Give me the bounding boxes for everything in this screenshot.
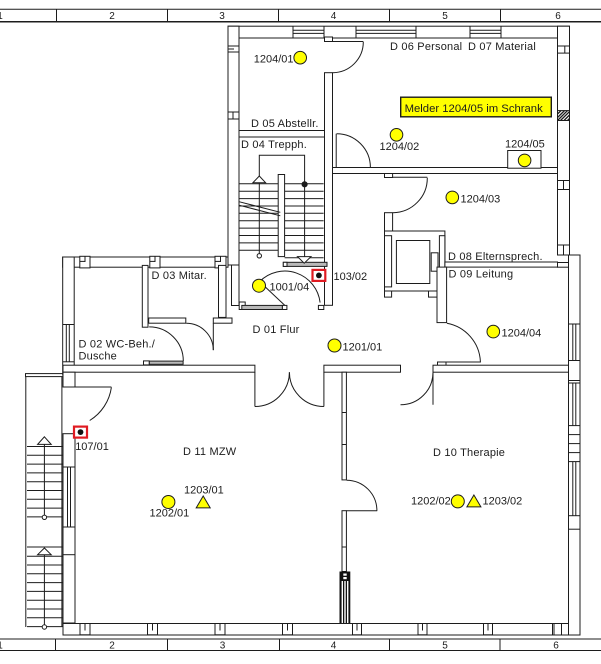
svg-text:3: 3 bbox=[219, 11, 225, 22]
svg-text:1204/03: 1204/03 bbox=[461, 193, 501, 205]
svg-text:Melder 1204/05 im Schrank: Melder 1204/05 im Schrank bbox=[405, 103, 543, 115]
svg-text:6: 6 bbox=[553, 641, 559, 652]
svg-text:D 02 WC-Beh./: D 02 WC-Beh./ bbox=[79, 339, 156, 351]
svg-text:D 05 Abstellr.: D 05 Abstellr. bbox=[251, 118, 319, 130]
svg-text:5: 5 bbox=[442, 11, 448, 22]
svg-text:D 03 Mitar.: D 03 Mitar. bbox=[152, 270, 207, 282]
svg-text:4: 4 bbox=[331, 641, 337, 652]
svg-text:1204/02: 1204/02 bbox=[380, 141, 420, 153]
svg-text:D 10 Therapie: D 10 Therapie bbox=[433, 447, 505, 459]
svg-text:1203/01: 1203/01 bbox=[184, 485, 224, 497]
svg-text:107/01: 107/01 bbox=[75, 441, 109, 453]
svg-text:D 09 Leitung: D 09 Leitung bbox=[449, 269, 514, 281]
svg-text:1: 1 bbox=[0, 11, 3, 22]
svg-text:D 07 Material: D 07 Material bbox=[468, 41, 536, 53]
svg-text:D 11 MZW: D 11 MZW bbox=[183, 446, 237, 458]
svg-text:4: 4 bbox=[331, 11, 337, 22]
svg-text:1202/01: 1202/01 bbox=[150, 507, 190, 519]
svg-text:1202/02: 1202/02 bbox=[411, 496, 451, 508]
svg-text:5: 5 bbox=[442, 641, 448, 652]
svg-text:103/02: 103/02 bbox=[334, 271, 368, 283]
svg-text:Dusche: Dusche bbox=[79, 351, 118, 363]
svg-text:D 06 Personal: D 06 Personal bbox=[390, 41, 462, 53]
svg-text:D 04 Trepph.: D 04 Trepph. bbox=[241, 139, 307, 151]
svg-text:6: 6 bbox=[555, 11, 561, 22]
svg-text:1204/04: 1204/04 bbox=[502, 327, 542, 339]
svg-text:1204/05: 1204/05 bbox=[505, 138, 545, 150]
svg-text:1: 1 bbox=[0, 641, 3, 652]
svg-text:2: 2 bbox=[109, 641, 115, 652]
svg-text:D 01 Flur: D 01 Flur bbox=[253, 324, 300, 336]
svg-text:3: 3 bbox=[220, 641, 226, 652]
svg-text:D 08 Elternsprech.: D 08 Elternsprech. bbox=[448, 251, 543, 263]
svg-text:1203/02: 1203/02 bbox=[483, 496, 523, 508]
svg-text:2: 2 bbox=[109, 11, 115, 22]
svg-text:1201/01: 1201/01 bbox=[343, 341, 383, 353]
svg-text:1204/01: 1204/01 bbox=[254, 54, 294, 66]
svg-text:1001/04: 1001/04 bbox=[270, 282, 310, 294]
